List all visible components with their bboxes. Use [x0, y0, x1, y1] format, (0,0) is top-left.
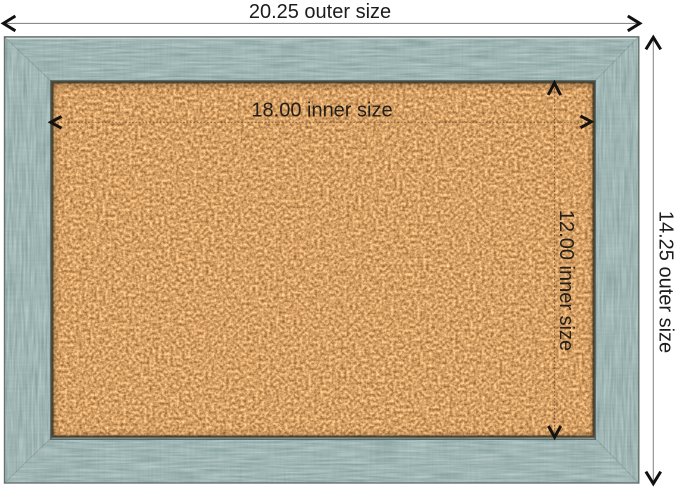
svg-text:20.25 outer size: 20.25 outer size	[249, 1, 391, 23]
svg-text:18.00 inner size: 18.00 inner size	[251, 99, 392, 121]
svg-text:12.00 inner size: 12.00 inner size	[555, 210, 577, 351]
svg-text:14.25 outer size: 14.25 outer size	[655, 211, 677, 353]
